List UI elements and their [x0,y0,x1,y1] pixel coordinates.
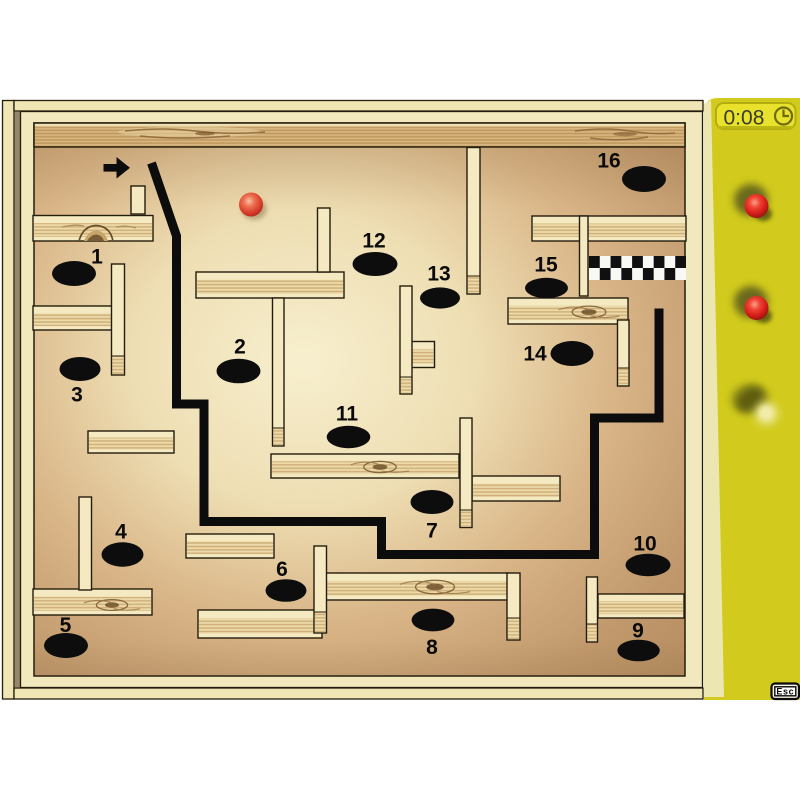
svg-text:15: 15 [534,254,558,277]
svg-text:12: 12 [362,230,385,253]
svg-text:8: 8 [426,636,438,659]
svg-text:0:08: 0:08 [724,107,765,130]
svg-text:2: 2 [234,336,246,359]
svg-text:7: 7 [426,520,438,543]
svg-text:14: 14 [523,343,547,366]
svg-text:11: 11 [336,403,359,426]
svg-text:13: 13 [427,263,450,286]
svg-text:6: 6 [276,558,288,581]
svg-text:5: 5 [60,614,72,637]
svg-text:10: 10 [633,533,656,556]
svg-text:3: 3 [71,384,83,407]
svg-text:4: 4 [115,521,127,544]
svg-text:Esc: Esc [776,687,794,697]
svg-text:9: 9 [632,620,644,643]
svg-text:1: 1 [91,246,103,269]
svg-text:16: 16 [597,150,620,173]
